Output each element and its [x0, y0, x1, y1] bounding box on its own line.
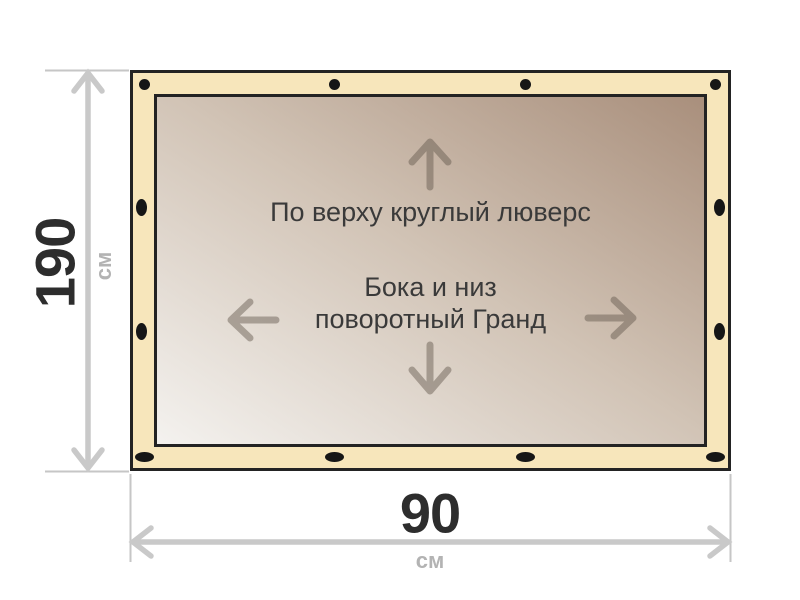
height-arrowhead-down-icon [74, 450, 102, 468]
grommet-round-top-3-icon [520, 79, 531, 90]
sides-bottom-note: Бока и низ поворотный Гранд [154, 271, 707, 335]
grommet-round-top-4-icon [710, 79, 721, 90]
grommet-oval-right-2-icon [714, 323, 725, 340]
grommet-oval-left-1-icon [136, 199, 147, 216]
grommet-round-top-2-icon [329, 79, 340, 90]
width-arrowhead-left-icon [133, 528, 151, 556]
grommet-round-top-1-icon [139, 79, 150, 90]
grommet-oval-bottom-1-icon [135, 452, 154, 462]
grommet-oval-bottom-2-icon [325, 452, 344, 462]
height-value-label: 190 [23, 218, 88, 308]
grommet-oval-right-1-icon [714, 199, 725, 216]
diagram-canvas: По верху круглый люверс Бока и низ повор… [0, 0, 800, 600]
height-unit-label: см [91, 252, 117, 281]
sides-bottom-note-line2: поворотный Гранд [154, 303, 707, 335]
top-grommet-note: По верху круглый люверс [154, 196, 707, 228]
width-arrowhead-right-icon [710, 528, 728, 556]
height-arrowhead-up-icon [74, 73, 102, 91]
grommet-oval-bottom-4-icon [706, 452, 725, 462]
width-unit-label: см [416, 548, 445, 574]
sides-bottom-note-line1: Бока и низ [154, 271, 707, 303]
grommet-oval-bottom-3-icon [516, 452, 535, 462]
grommet-oval-left-2-icon [136, 323, 147, 340]
width-value-label: 90 [400, 481, 460, 546]
